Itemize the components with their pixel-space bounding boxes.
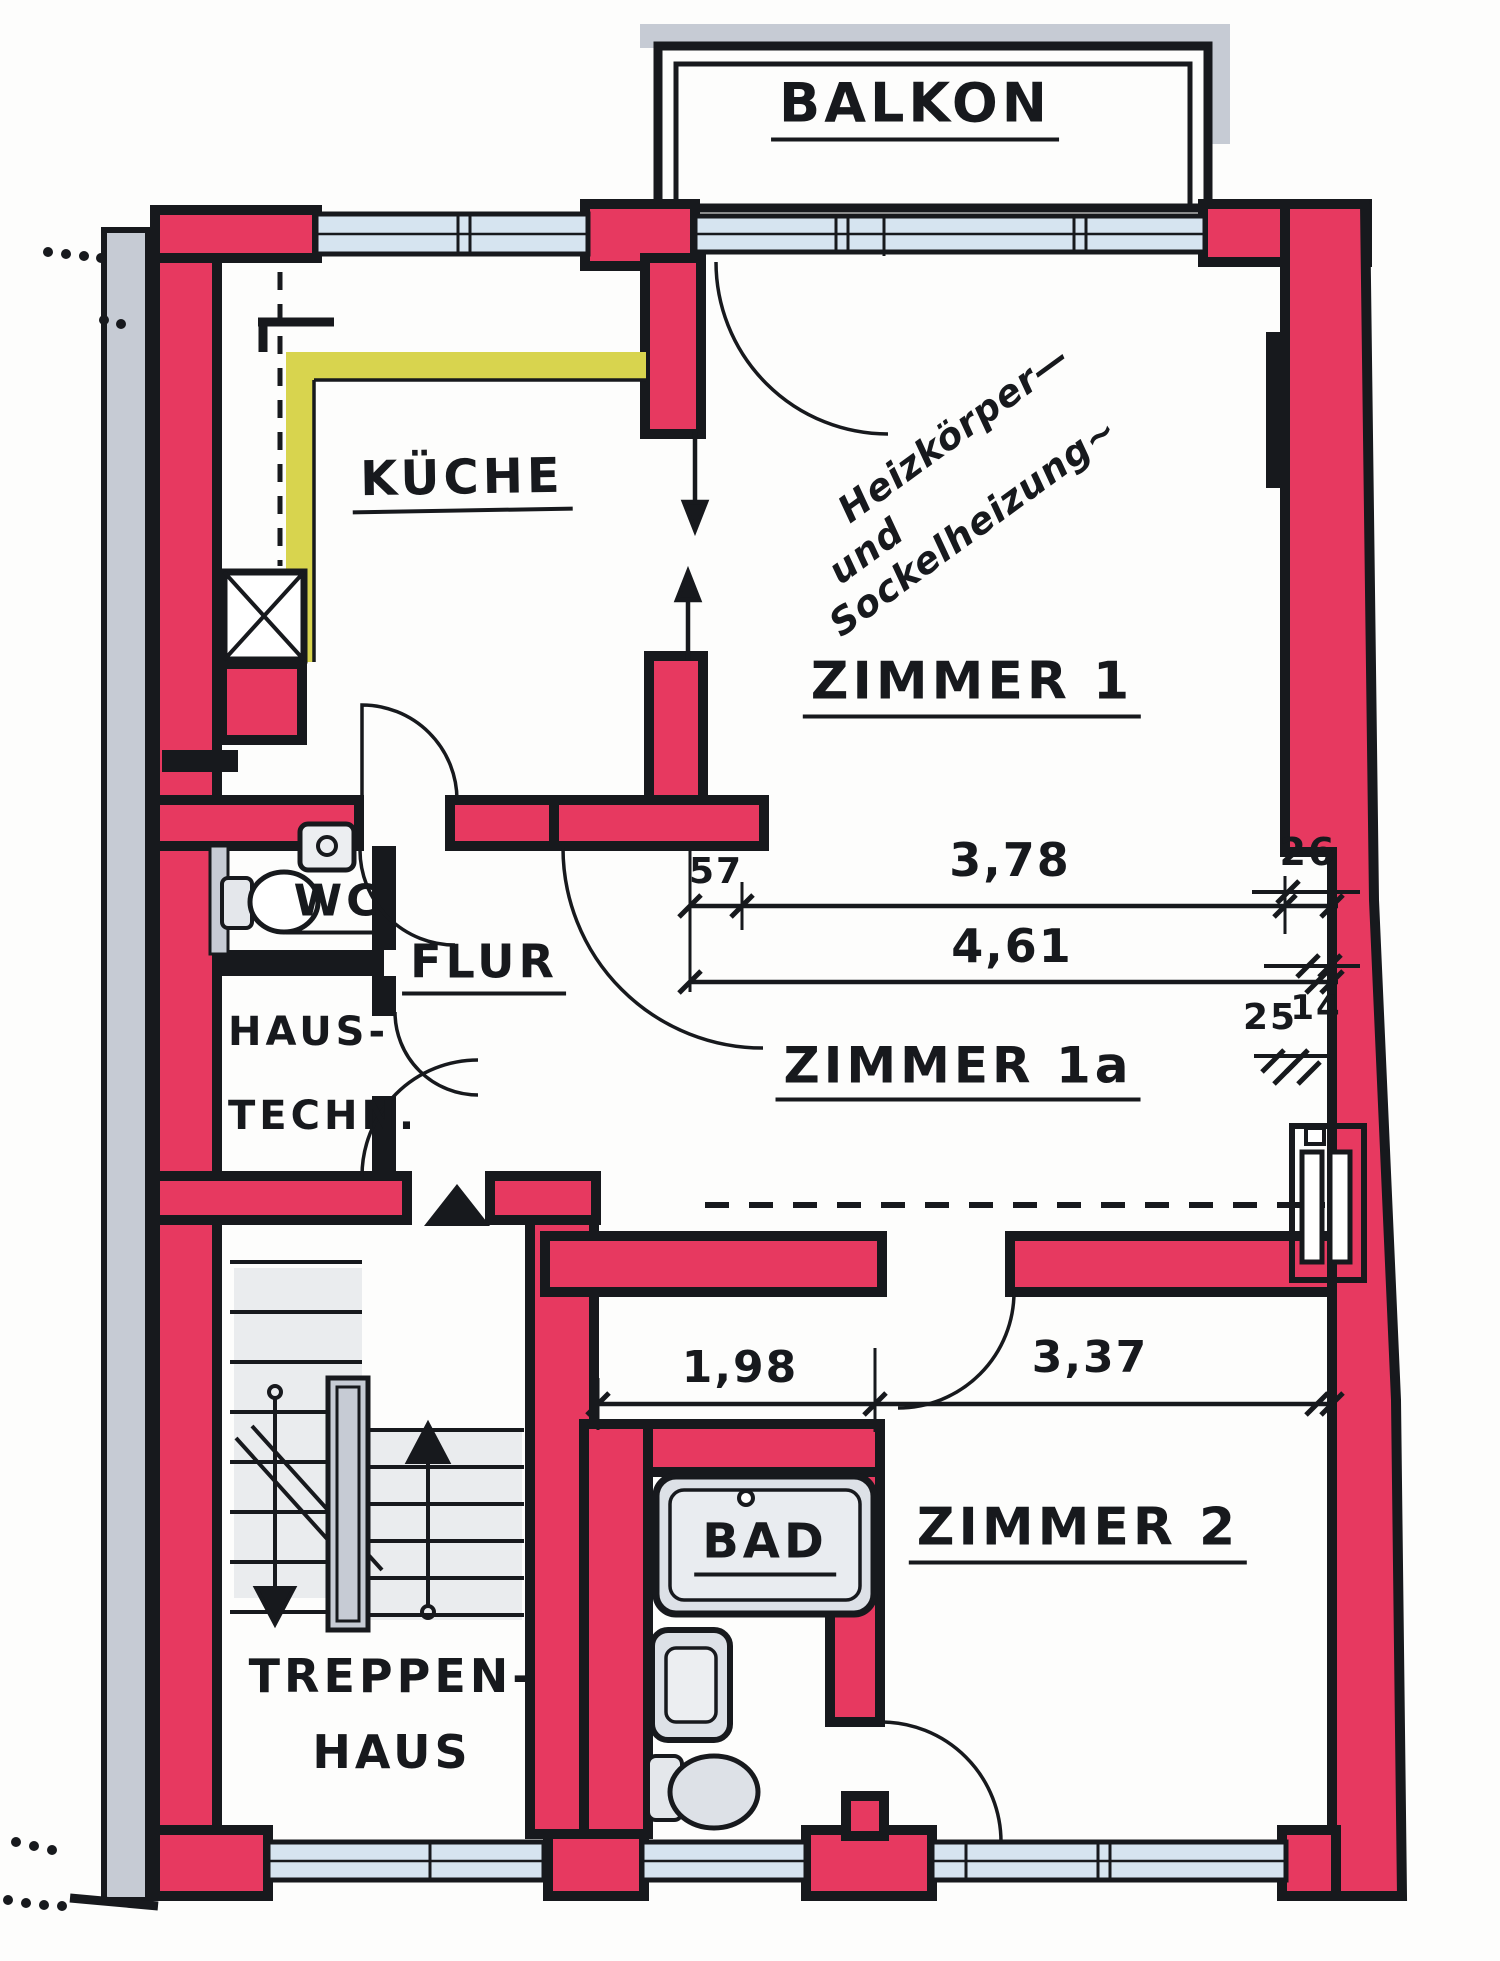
wall-top-left [155, 210, 317, 258]
wall-t-bar [552, 800, 764, 846]
room-label-flur: FLUR [402, 937, 566, 996]
dim-14: 14 [1290, 991, 1341, 1025]
room-label-bad: BAD [694, 1516, 836, 1577]
room-label-zimmer1a: ZIMMER 1a [776, 1039, 1141, 1102]
wall-zimmer1a-zimmer2-left [545, 1236, 882, 1292]
floor-plan-drawing [0, 0, 1500, 1961]
staircase [230, 1262, 524, 1630]
entrance-arrow-icon [424, 1184, 490, 1226]
dim-1-98: 1,98 [682, 1346, 799, 1390]
stair-divider [328, 1378, 368, 1630]
counter-top-run [298, 352, 646, 380]
room-label-kueche: KÜCHE [352, 450, 573, 515]
room-label-haustechnik-line2: TECHN. [228, 1096, 418, 1136]
wall-right [1285, 204, 1402, 1896]
dim-4-61: 4,61 [951, 923, 1073, 969]
wc-toilet-tank [222, 878, 252, 928]
wall-entrance-left [155, 1176, 407, 1220]
wall-wc-haustechnik [222, 950, 384, 976]
wall-ledge-left [162, 750, 238, 772]
wall-bad-door-stub [846, 1796, 884, 1836]
arrow-down-icon [684, 502, 706, 530]
dim-3-37: 3,37 [1032, 1336, 1149, 1380]
door-arc-balcony [716, 262, 888, 434]
room-label-wc: WC [286, 878, 391, 935]
room-label-treppenhaus-line1: TREPPEN- [249, 1653, 536, 1699]
wall-bad-left [584, 1424, 648, 1834]
wall-kueche-flur-stub [450, 800, 554, 846]
dim-57: 57 [689, 854, 743, 890]
wall-bottom-left-corner [155, 1830, 268, 1896]
balcony-label: BALKON [771, 75, 1059, 142]
wall-bottom-pier1 [548, 1830, 644, 1896]
floor-plan: BALKON KÜCHE ZIMMER 1 ZIMMER 1a ZIMMER 2… [0, 0, 1500, 1961]
wall-bottom-right-corner [1282, 1830, 1336, 1896]
room-label-zimmer1: ZIMMER 1 [803, 654, 1141, 719]
kitchen-shaft [224, 572, 304, 660]
room-label-treppenhaus-line2: HAUS [312, 1729, 471, 1775]
wall-kueche-zimmer1-lower [649, 656, 703, 804]
passage-arrows [677, 432, 706, 660]
dim-26: 26 [1280, 833, 1337, 871]
radiator-pipe-2 [1330, 1152, 1350, 1262]
bathtub-drain-icon [739, 1491, 753, 1505]
door-arc-zimmer2 [898, 1292, 1014, 1408]
wall-zimmer1a-zimmer2-right [1010, 1236, 1332, 1292]
arrow-up-icon [677, 572, 699, 600]
room-label-zimmer2: ZIMMER 2 [909, 1500, 1247, 1565]
kitchen-counter-edges [314, 380, 646, 662]
door-arc-kueche [362, 705, 457, 800]
radiator-pipe-1 [1302, 1152, 1322, 1262]
wall-kueche-zimmer1-upper [645, 258, 701, 434]
dim-25: 25 [1243, 1000, 1297, 1036]
room-label-haustechnik-line1: HAUS- [228, 1012, 389, 1052]
building-wall-gray [104, 230, 148, 1900]
wall-kueche-chimney [222, 664, 302, 740]
wall-entrance-right [490, 1176, 596, 1220]
wall-left [155, 210, 217, 1892]
bad-toilet-icon [670, 1756, 758, 1828]
wc-sink-icon [300, 824, 354, 870]
radiator-bar-icon [1266, 332, 1280, 488]
door-arc-bad [881, 1722, 1001, 1842]
dim-3-78: 3,78 [949, 837, 1071, 883]
stairwell-outer-wall [104, 230, 148, 1900]
